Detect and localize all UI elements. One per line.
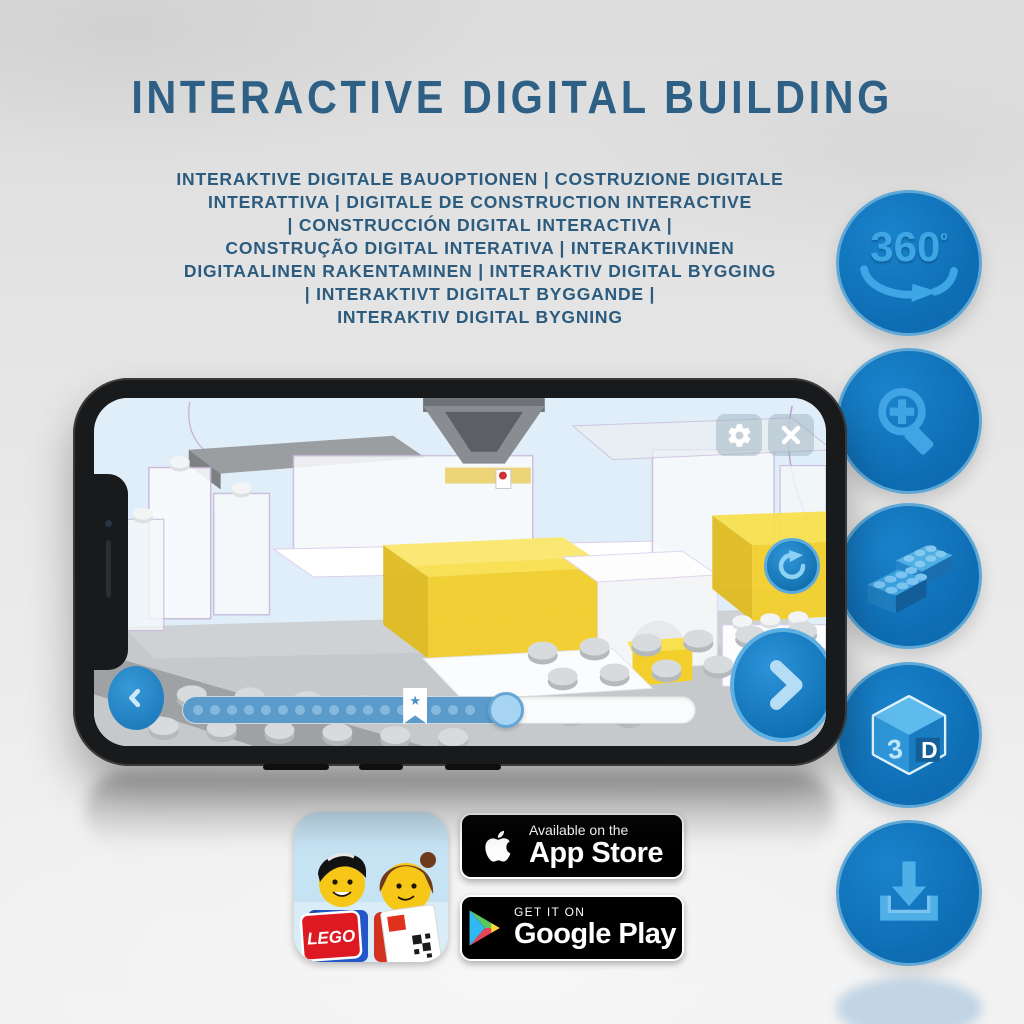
chevron-left-icon [125, 685, 147, 711]
subtitle-line: INTERATTIVA | DIGITALE DE CONSTRUCTION I… [80, 191, 880, 214]
feature-download-badge [836, 820, 982, 966]
power-button [445, 764, 501, 770]
subtitle-line: CONSTRUÇÃO DIGITAL INTERATIVA | INTERAKT… [80, 237, 880, 260]
progress-step-dots [193, 705, 203, 715]
build-progress-bar[interactable]: ★ [182, 696, 696, 724]
zoom-in-icon [867, 379, 951, 463]
google-play-badge[interactable]: GET IT ON Google Play [460, 895, 684, 961]
settings-button[interactable] [716, 414, 762, 456]
3d-cube-icon: 3 D [866, 692, 952, 778]
svg-text:LEGO: LEGO [306, 926, 355, 948]
circle-reflection [836, 978, 982, 1024]
volume-button [263, 764, 329, 770]
google-play-icon [468, 906, 502, 950]
feature-3d-badge: 3 D [836, 662, 982, 808]
close-button[interactable] [768, 414, 814, 456]
360-rotation-label: 360º [870, 224, 947, 264]
subtitle-line: INTERAKTIV DIGITAL BYGNING [80, 306, 880, 329]
feature-brick-badge [836, 503, 982, 649]
phone-screen: ★ [94, 398, 826, 746]
feature-360-badge: 360º [836, 190, 982, 336]
multilingual-subtitle: INTERAKTIVE DIGITALE BAUOPTIONEN | COSTR… [80, 168, 880, 329]
brick-building-icon [863, 536, 955, 616]
download-icon [867, 851, 951, 935]
rotate-model-button[interactable] [764, 538, 820, 594]
camera-dot [105, 520, 112, 527]
360-rotation-arrow-icon [855, 264, 963, 302]
subtitle-line: DIGITAALINEN RAKENTAMINEN | INTERAKTIV D… [80, 260, 880, 283]
subtitle-line: | INTERAKTIVT DIGITALT BYGGANDE | [80, 283, 880, 306]
next-step-button[interactable] [730, 628, 826, 742]
gear-icon [726, 422, 753, 449]
volume-button [359, 764, 403, 770]
page-title: INTERACTIVE DIGITAL BUILDING [0, 70, 1024, 124]
phone-reflection [86, 772, 834, 850]
speaker-slit [106, 540, 111, 598]
google-play-name: Google Play [514, 919, 676, 949]
progress-fill [183, 697, 506, 723]
rotate-icon [776, 550, 808, 582]
phone-mockup: ★ [73, 378, 847, 766]
chevron-right-icon [757, 656, 809, 714]
feature-zoom-badge [836, 348, 982, 494]
phone-notch [92, 474, 128, 670]
close-icon [779, 423, 803, 447]
lego-app-promo-page: INTERACTIVE DIGITAL BUILDING INTERAKTIVE… [0, 0, 1024, 1024]
progress-slider-knob[interactable] [488, 692, 524, 728]
previous-step-button[interactable] [108, 666, 164, 730]
svg-text:D: D [921, 737, 938, 763]
subtitle-line: | CONSTRUCCIÓN DIGITAL INTERACTIVA | [80, 214, 880, 237]
subtitle-line: INTERAKTIVE DIGITALE BAUOPTIONEN | COSTR… [80, 168, 880, 191]
